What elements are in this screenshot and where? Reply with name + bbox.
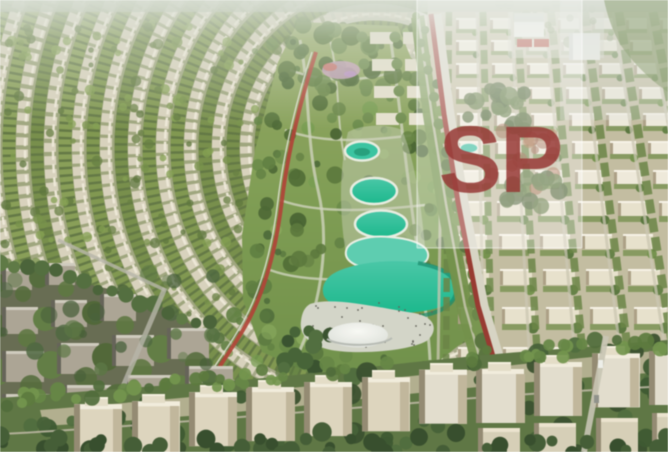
svg-text:SP: SP [439, 107, 562, 213]
